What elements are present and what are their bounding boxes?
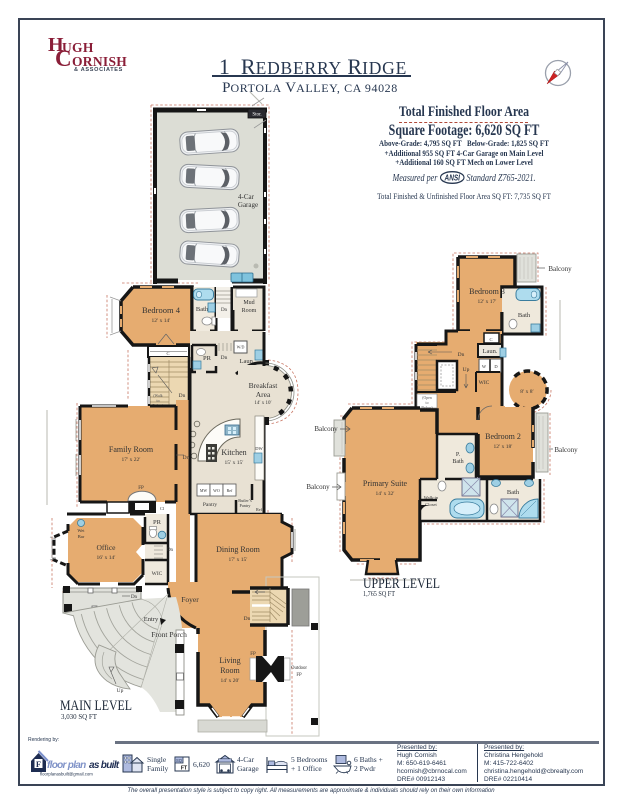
svg-text:Walk-in: Walk-in	[424, 495, 439, 500]
svg-text:17′ x 15′: 17′ x 15′	[229, 557, 248, 563]
svg-text:15′ x 15′: 15′ x 15′	[225, 460, 244, 466]
svg-text:Cl: Cl	[160, 506, 165, 511]
svg-text:Bedroom 3: Bedroom 3	[469, 287, 505, 296]
svg-text:PR: PR	[153, 519, 162, 526]
svg-text:4-Car: 4-Car	[237, 755, 255, 764]
svg-text:Balcony: Balcony	[548, 265, 572, 273]
svg-text:17′ x 22′: 17′ x 22′	[122, 457, 141, 463]
svg-text:Kitchen: Kitchen	[221, 448, 246, 457]
svg-text:Bath: Bath	[196, 306, 209, 313]
svg-text:C: C	[166, 351, 169, 356]
svg-text:Dining Room: Dining Room	[216, 545, 261, 554]
svg-text:Dn: Dn	[221, 355, 228, 361]
svg-text:DW: DW	[255, 446, 263, 451]
svg-text:to: to	[157, 399, 160, 403]
svg-text:Dn: Dn	[179, 393, 186, 399]
svg-text:12′ x 17′: 12′ x 17′	[478, 299, 497, 305]
svg-text:FP: FP	[138, 486, 144, 491]
svg-text:as built: as built	[89, 760, 120, 771]
svg-text:FT: FT	[181, 766, 188, 772]
svg-text:Bath: Bath	[507, 489, 520, 496]
svg-text:Room: Room	[220, 666, 240, 675]
svg-text:Office: Office	[96, 543, 116, 552]
svg-text:WO: WO	[213, 488, 220, 493]
svg-text:Area: Area	[256, 390, 271, 399]
svg-text:Dn: Dn	[167, 548, 174, 553]
svg-text:(Open: (Open	[422, 396, 432, 400]
svg-text:P.: P.	[456, 452, 461, 458]
svg-text:2 Pwdr: 2 Pwdr	[354, 764, 376, 773]
svg-text:Garage: Garage	[237, 764, 259, 773]
svg-text:FP: FP	[250, 652, 256, 657]
svg-text:Balcony: Balcony	[314, 425, 338, 433]
svg-text:3,030 SQ FT: 3,030 SQ FT	[61, 712, 97, 721]
svg-text:MW: MW	[200, 488, 208, 493]
svg-text:Entry: Entry	[144, 616, 159, 623]
svg-text:Single: Single	[147, 755, 167, 764]
svg-text:Garage: Garage	[238, 201, 258, 209]
svg-text:Ref: Ref	[256, 507, 263, 512]
svg-text:Stor.: Stor.	[252, 113, 261, 118]
svg-text:Bath: Bath	[518, 312, 531, 319]
svg-text:to: to	[426, 401, 429, 405]
svg-text:8′ x 8′: 8′ x 8′	[520, 389, 533, 395]
svg-text:Primary Suite: Primary Suite	[363, 479, 408, 488]
svg-text:Laun.: Laun.	[483, 348, 498, 355]
svg-text:(Walk: (Walk	[153, 394, 162, 398]
svg-text:Mud: Mud	[243, 300, 254, 306]
svg-text:14′ x 20′: 14′ x 20′	[221, 678, 240, 684]
svg-text:Balcony: Balcony	[554, 446, 578, 454]
svg-text:+ 1 Office: + 1 Office	[291, 764, 322, 773]
svg-text:WIC: WIC	[479, 380, 490, 386]
svg-text:SQ: SQ	[176, 758, 183, 763]
svg-text:floorplanasbuilt@gmail.com: floorplanasbuilt@gmail.com	[40, 772, 93, 777]
svg-text:12′ x 18′: 12′ x 18′	[494, 444, 513, 450]
svg-text:W/D: W/D	[237, 345, 245, 350]
svg-text:Ref: Ref	[227, 488, 233, 493]
svg-text:Bedroom 4: Bedroom 4	[142, 305, 181, 315]
svg-text:Room: Room	[242, 308, 257, 314]
svg-text:Front Porch: Front Porch	[151, 630, 187, 639]
svg-text:Family Room: Family Room	[109, 445, 154, 454]
svg-text:C: C	[489, 337, 492, 342]
svg-text:5 Bedrooms: 5 Bedrooms	[291, 755, 328, 764]
svg-text:Breakfast: Breakfast	[249, 381, 279, 390]
svg-text:4-Car: 4-Car	[238, 193, 255, 201]
svg-text:WIC: WIC	[152, 571, 163, 577]
svg-text:floor plan: floor plan	[47, 760, 86, 771]
svg-text:Outdoor: Outdoor	[291, 666, 307, 671]
svg-text:Dn: Dn	[244, 616, 251, 622]
svg-text:Closet: Closet	[425, 502, 437, 507]
svg-text:6 Baths +: 6 Baths +	[354, 755, 383, 764]
svg-text:Up: Up	[117, 688, 124, 694]
svg-text:Bath: Bath	[452, 459, 463, 465]
svg-text:F: F	[36, 759, 41, 769]
svg-text:12′ x 14′: 12′ x 14′	[152, 318, 171, 324]
svg-text:1,765 SQ FT: 1,765 SQ FT	[363, 589, 395, 598]
svg-text:Dn: Dn	[458, 352, 465, 358]
svg-text:Bar: Bar	[78, 534, 85, 539]
svg-text:Dn: Dn	[221, 308, 228, 313]
svg-text:Up: Up	[463, 367, 470, 373]
svg-text:Family: Family	[147, 764, 169, 773]
svg-text:Dn: Dn	[183, 455, 190, 461]
svg-text:Bedroom 2: Bedroom 2	[485, 432, 521, 441]
svg-text:Dn: Dn	[131, 595, 138, 600]
svg-text:16′ x 14′: 16′ x 14′	[97, 555, 116, 561]
svg-text:Pantry: Pantry	[203, 502, 218, 508]
svg-text:Living: Living	[219, 656, 240, 665]
svg-text:6,620: 6,620	[193, 760, 210, 769]
svg-text:PR: PR	[203, 355, 212, 362]
svg-text:Wet: Wet	[77, 528, 85, 533]
svg-text:Balcony: Balcony	[306, 483, 330, 491]
svg-text:14′ x 10′: 14′ x 10′	[254, 401, 271, 406]
svg-text:14′ x 32′: 14′ x 32′	[376, 491, 395, 497]
svg-text:FP: FP	[296, 673, 302, 678]
svg-text:Pantry: Pantry	[240, 503, 252, 508]
svg-text:Foyer: Foyer	[181, 595, 199, 604]
